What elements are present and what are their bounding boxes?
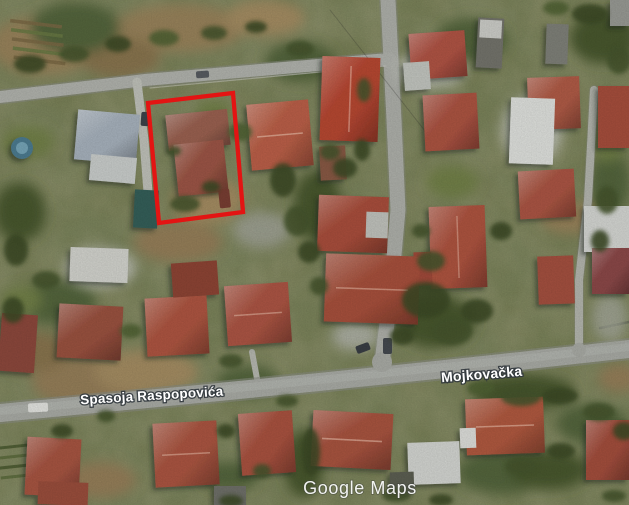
- satellite-imagery: Spasoja Raspopovića Mojkovačka Google Ma…: [0, 0, 629, 505]
- image-grain: [0, 0, 629, 505]
- google-maps-watermark: Google Maps: [303, 478, 417, 498]
- satellite-map[interactable]: Spasoja Raspopovića Mojkovačka Google Ma…: [0, 0, 629, 505]
